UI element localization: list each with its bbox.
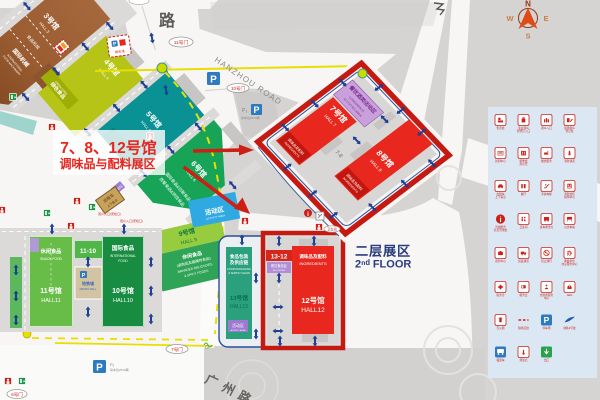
svg-text:E: E — [543, 14, 548, 23]
svg-text:卫生间: 卫生间 — [519, 225, 527, 229]
svg-text:二层展区: 二层展区 — [355, 244, 411, 259]
svg-text:10号门: 10号门 — [231, 85, 246, 92]
svg-text:13号馆: 13号馆 — [230, 294, 248, 302]
svg-text:班车乘坐点: 班车乘坐点 — [540, 225, 554, 229]
svg-text:N: N — [525, 0, 531, 9]
svg-text:停车位2510辆: 停车位2510辆 — [110, 367, 129, 372]
svg-text:P: P — [82, 273, 86, 279]
svg-text:路: 路 — [159, 11, 176, 30]
svg-text:HALL12: HALL12 — [301, 307, 325, 314]
svg-text:i: i — [499, 215, 501, 224]
svg-text:休闲食品: 休闲食品 — [40, 247, 62, 255]
svg-text:预登记入口: 预登记入口 — [517, 129, 531, 133]
svg-text:隔离红线: 隔离红线 — [518, 326, 529, 330]
svg-text:11号门: 11号门 — [174, 39, 189, 46]
svg-text:停车场: 停车场 — [542, 326, 550, 330]
svg-text:FOOD: FOOD — [118, 259, 128, 263]
svg-text:13-12: 13-12 — [271, 254, 288, 261]
svg-text:P₃: P₃ — [110, 362, 115, 367]
svg-text:AED: AED — [567, 293, 573, 297]
svg-text:S: S — [525, 32, 530, 41]
svg-text:METRO MALL: METRO MALL — [80, 287, 97, 291]
svg-text:出口: 出口 — [544, 358, 550, 362]
svg-text:P: P — [253, 105, 259, 115]
svg-text:商务中心: 商务中心 — [495, 259, 506, 263]
svg-text:观众入口: 观众入口 — [541, 126, 552, 130]
svg-text:手扶电梯: 手扶电梯 — [541, 192, 552, 196]
svg-text:7、8、12号馆: 7、8、12号馆 — [60, 138, 156, 157]
svg-text:11-10: 11-10 — [80, 248, 97, 255]
svg-text:灭火器: 灭火器 — [496, 326, 504, 330]
svg-text:服务台: 服务台 — [519, 293, 527, 297]
svg-text:HALL11: HALL11 — [41, 298, 60, 304]
svg-text:国际食品: 国际食品 — [112, 244, 135, 252]
svg-text:禁止通行: 禁止通行 — [541, 259, 552, 263]
svg-text:P: P — [210, 75, 217, 86]
svg-text:中心: 中心 — [544, 296, 550, 300]
svg-text:W: W — [506, 14, 514, 23]
svg-text:指挥中心: 指挥中心 — [564, 195, 575, 199]
svg-text:2ⁿᵈ FLOOR: 2ⁿᵈ FLOOR — [355, 259, 411, 271]
svg-text:餐厅: 餐厅 — [521, 192, 527, 196]
svg-text:办公室: 办公室 — [519, 162, 527, 166]
svg-text:公交车站: 公交车站 — [564, 225, 575, 229]
svg-text:P: P — [544, 315, 550, 325]
svg-text:ACTIVITY AREA: ACTIVITY AREA — [231, 329, 247, 332]
svg-text:货运通道: 货运通道 — [518, 259, 529, 263]
svg-text:观众入口(安检口): 观众入口(安检口) — [120, 218, 143, 223]
svg-text:测温点: 测温点 — [519, 358, 527, 362]
svg-text:上下客点: 上下客点 — [495, 195, 506, 199]
svg-text:信息咨询处: 信息咨询处 — [494, 228, 508, 232]
svg-text:新闻中心: 新闻中心 — [495, 159, 506, 163]
svg-text:P₃: P₃ — [242, 108, 247, 114]
svg-text:HALL13: HALL13 — [230, 304, 248, 310]
svg-text:ACTIVITIES: ACTIVITIES — [273, 269, 285, 272]
svg-text:HALL10: HALL10 — [113, 298, 133, 304]
svg-text:& SUPPLY CHAIN: & SUPPLY CHAIN — [228, 271, 249, 275]
svg-text:消防通道: 消防通道 — [564, 159, 575, 163]
svg-text:12号馆: 12号馆 — [301, 295, 325, 305]
svg-text:摆渡车: 摆渡车 — [496, 358, 504, 362]
svg-text:i: i — [307, 211, 309, 218]
svg-text:观众入口(安检口): 观众入口(安检口) — [98, 211, 121, 216]
svg-text:SNACK FOOD: SNACK FOOD — [40, 257, 62, 261]
svg-text:及供应链: 及供应链 — [230, 259, 249, 266]
svg-text:调味品及配料: 调味品及配料 — [299, 253, 327, 260]
svg-text:食品包装: 食品包装 — [230, 253, 249, 260]
svg-text:地铁城: 地铁城 — [82, 280, 94, 286]
svg-text:INGREDIENTS: INGREDIENTS — [299, 261, 327, 266]
svg-text:办证服务中心: 办证服务中心 — [561, 262, 577, 266]
svg-text:P: P — [96, 363, 103, 374]
svg-text:10号馆: 10号馆 — [112, 286, 134, 295]
svg-text:INTERNATIONAL: INTERNATIONAL — [110, 254, 136, 258]
svg-text:7号门: 7号门 — [171, 346, 183, 353]
svg-text:停车位2870辆: 停车位2870辆 — [241, 115, 260, 120]
svg-text:餐饮服务: 餐饮服务 — [541, 159, 552, 163]
svg-text:FOOD PACKAGING: FOOD PACKAGING — [227, 267, 250, 271]
svg-text:餐饮食品区: 餐饮食品区 — [271, 263, 288, 268]
svg-text:登记处: 登记处 — [565, 129, 573, 133]
svg-text:活动区: 活动区 — [232, 322, 244, 328]
svg-text:地铁2号线: 地铁2号线 — [563, 326, 576, 330]
svg-text:医务室: 医务室 — [496, 293, 504, 297]
svg-text:售票处: 售票处 — [496, 126, 504, 130]
svg-text:11号馆: 11号馆 — [40, 286, 61, 295]
svg-text:6号门: 6号门 — [11, 391, 23, 398]
svg-text:卫生间: 卫生间 — [327, 227, 337, 232]
svg-text:调味品与配料展区: 调味品与配料展区 — [59, 156, 155, 171]
